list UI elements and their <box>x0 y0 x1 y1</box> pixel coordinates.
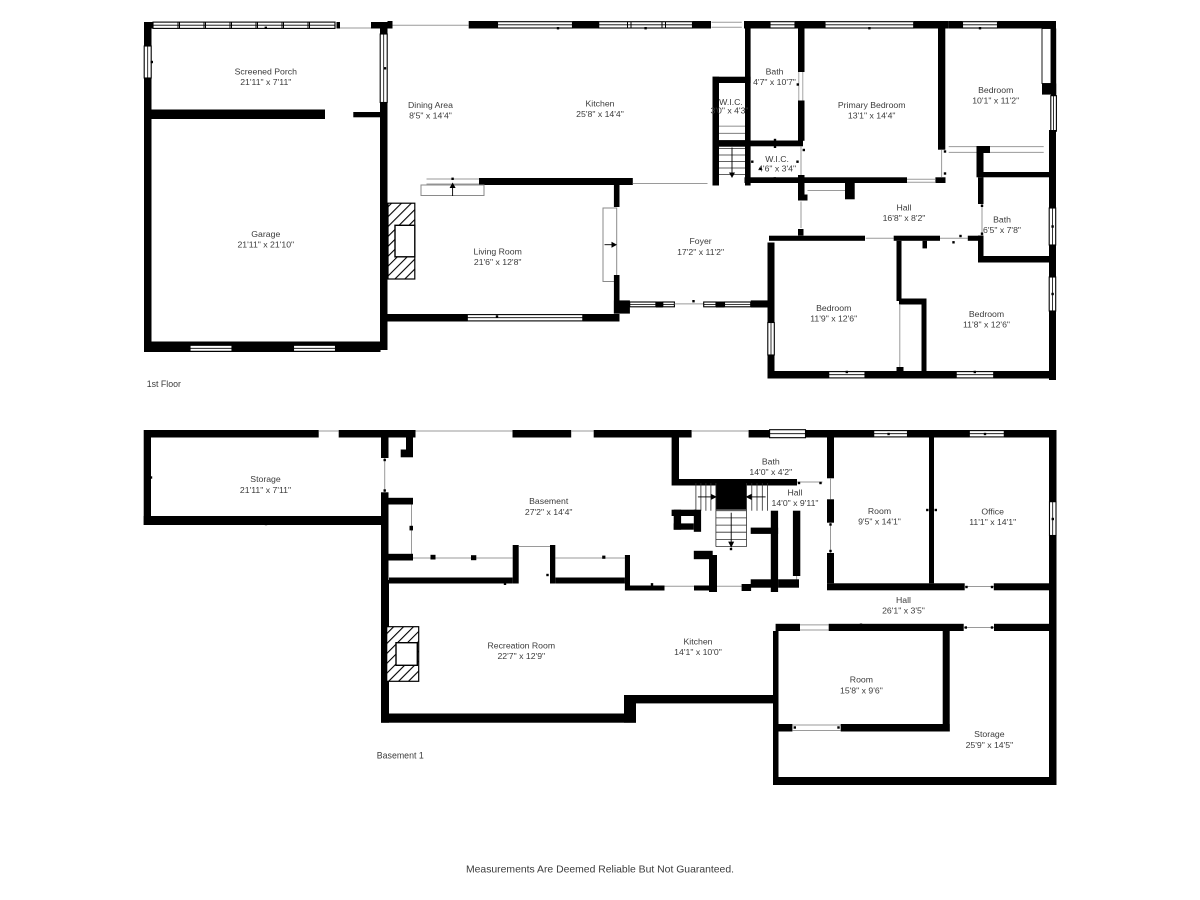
svg-text:Bath: Bath <box>766 67 784 77</box>
svg-text:8'5" x 14'4": 8'5" x 14'4" <box>409 111 452 121</box>
svg-text:Hall: Hall <box>897 203 912 213</box>
svg-text:14'1" x 10'0": 14'1" x 10'0" <box>674 647 722 657</box>
svg-text:Kitchen: Kitchen <box>684 637 713 647</box>
svg-text:16'8" x 8'2": 16'8" x 8'2" <box>883 213 926 223</box>
svg-text:25'9" x 14'5": 25'9" x 14'5" <box>966 740 1014 750</box>
svg-text:13'1" x 14'4": 13'1" x 14'4" <box>848 111 896 121</box>
svg-text:Bath: Bath <box>762 457 780 467</box>
svg-text:11'1" x 14'1": 11'1" x 14'1" <box>969 517 1016 527</box>
svg-text:1st Floor: 1st Floor <box>147 379 181 389</box>
svg-text:21'11" x 7'11": 21'11" x 7'11" <box>240 77 291 87</box>
svg-text:27'2" x 14'4": 27'2" x 14'4" <box>525 507 573 517</box>
svg-text:Office: Office <box>981 507 1004 517</box>
svg-text:3'0" x 4'3": 3'0" x 4'3" <box>711 106 749 116</box>
svg-text:4'7" x 10'7": 4'7" x 10'7" <box>753 77 796 87</box>
svg-text:21'6" x 12'8": 21'6" x 12'8" <box>474 257 522 267</box>
svg-text:Recreation Room: Recreation Room <box>487 640 555 650</box>
svg-text:Storage: Storage <box>250 474 281 484</box>
svg-text:Foyer: Foyer <box>689 236 711 246</box>
svg-text:21'11" x 21'10": 21'11" x 21'10" <box>237 239 294 249</box>
svg-text:Screened Porch: Screened Porch <box>235 67 297 77</box>
svg-text:Dining Area: Dining Area <box>408 100 453 110</box>
svg-text:9'5" x 14'1": 9'5" x 14'1" <box>858 517 901 527</box>
svg-text:Basement: Basement <box>529 496 569 506</box>
svg-text:Room: Room <box>868 506 891 516</box>
svg-text:W.I.C.: W.I.C. <box>765 154 789 164</box>
svg-text:6'5" x 7'8": 6'5" x 7'8" <box>983 225 1021 235</box>
svg-text:Kitchen: Kitchen <box>586 99 615 109</box>
svg-text:17'2" x 11'2": 17'2" x 11'2" <box>677 247 724 257</box>
svg-text:Primary Bedroom: Primary Bedroom <box>838 100 906 110</box>
svg-text:Bedroom: Bedroom <box>816 303 851 313</box>
svg-text:Hall: Hall <box>788 488 803 498</box>
svg-text:22'7" x 12'9": 22'7" x 12'9" <box>497 651 545 661</box>
svg-text:Storage: Storage <box>974 729 1005 739</box>
svg-text:11'8" x 12'6": 11'8" x 12'6" <box>963 319 1010 329</box>
svg-text:14'0" x 9'11": 14'0" x 9'11" <box>772 498 819 508</box>
svg-text:Bath: Bath <box>993 215 1011 225</box>
svg-text:Hall: Hall <box>896 595 911 605</box>
svg-text:Measurements Are Deemed Reliab: Measurements Are Deemed Reliable But Not… <box>466 865 734 876</box>
svg-text:Bedroom: Bedroom <box>978 85 1013 95</box>
svg-text:4'6" x 3'4": 4'6" x 3'4" <box>758 163 796 173</box>
svg-text:Garage: Garage <box>251 229 280 239</box>
svg-text:26'1" x 3'5": 26'1" x 3'5" <box>882 606 925 616</box>
svg-text:Basement 1: Basement 1 <box>377 751 424 761</box>
svg-text:11'9" x 12'6": 11'9" x 12'6" <box>810 314 857 324</box>
svg-text:25'8" x 14'4": 25'8" x 14'4" <box>576 109 624 119</box>
svg-text:14'0" x 4'2": 14'0" x 4'2" <box>749 467 792 477</box>
svg-text:15'8" x 9'6": 15'8" x 9'6" <box>840 685 883 695</box>
svg-text:Living Room: Living Room <box>474 247 522 257</box>
svg-text:10'1" x 11'2": 10'1" x 11'2" <box>972 96 1019 106</box>
svg-text:21'11" x 7'11": 21'11" x 7'11" <box>240 485 291 495</box>
svg-text:Bedroom: Bedroom <box>969 309 1004 319</box>
svg-text:Room: Room <box>850 675 873 685</box>
